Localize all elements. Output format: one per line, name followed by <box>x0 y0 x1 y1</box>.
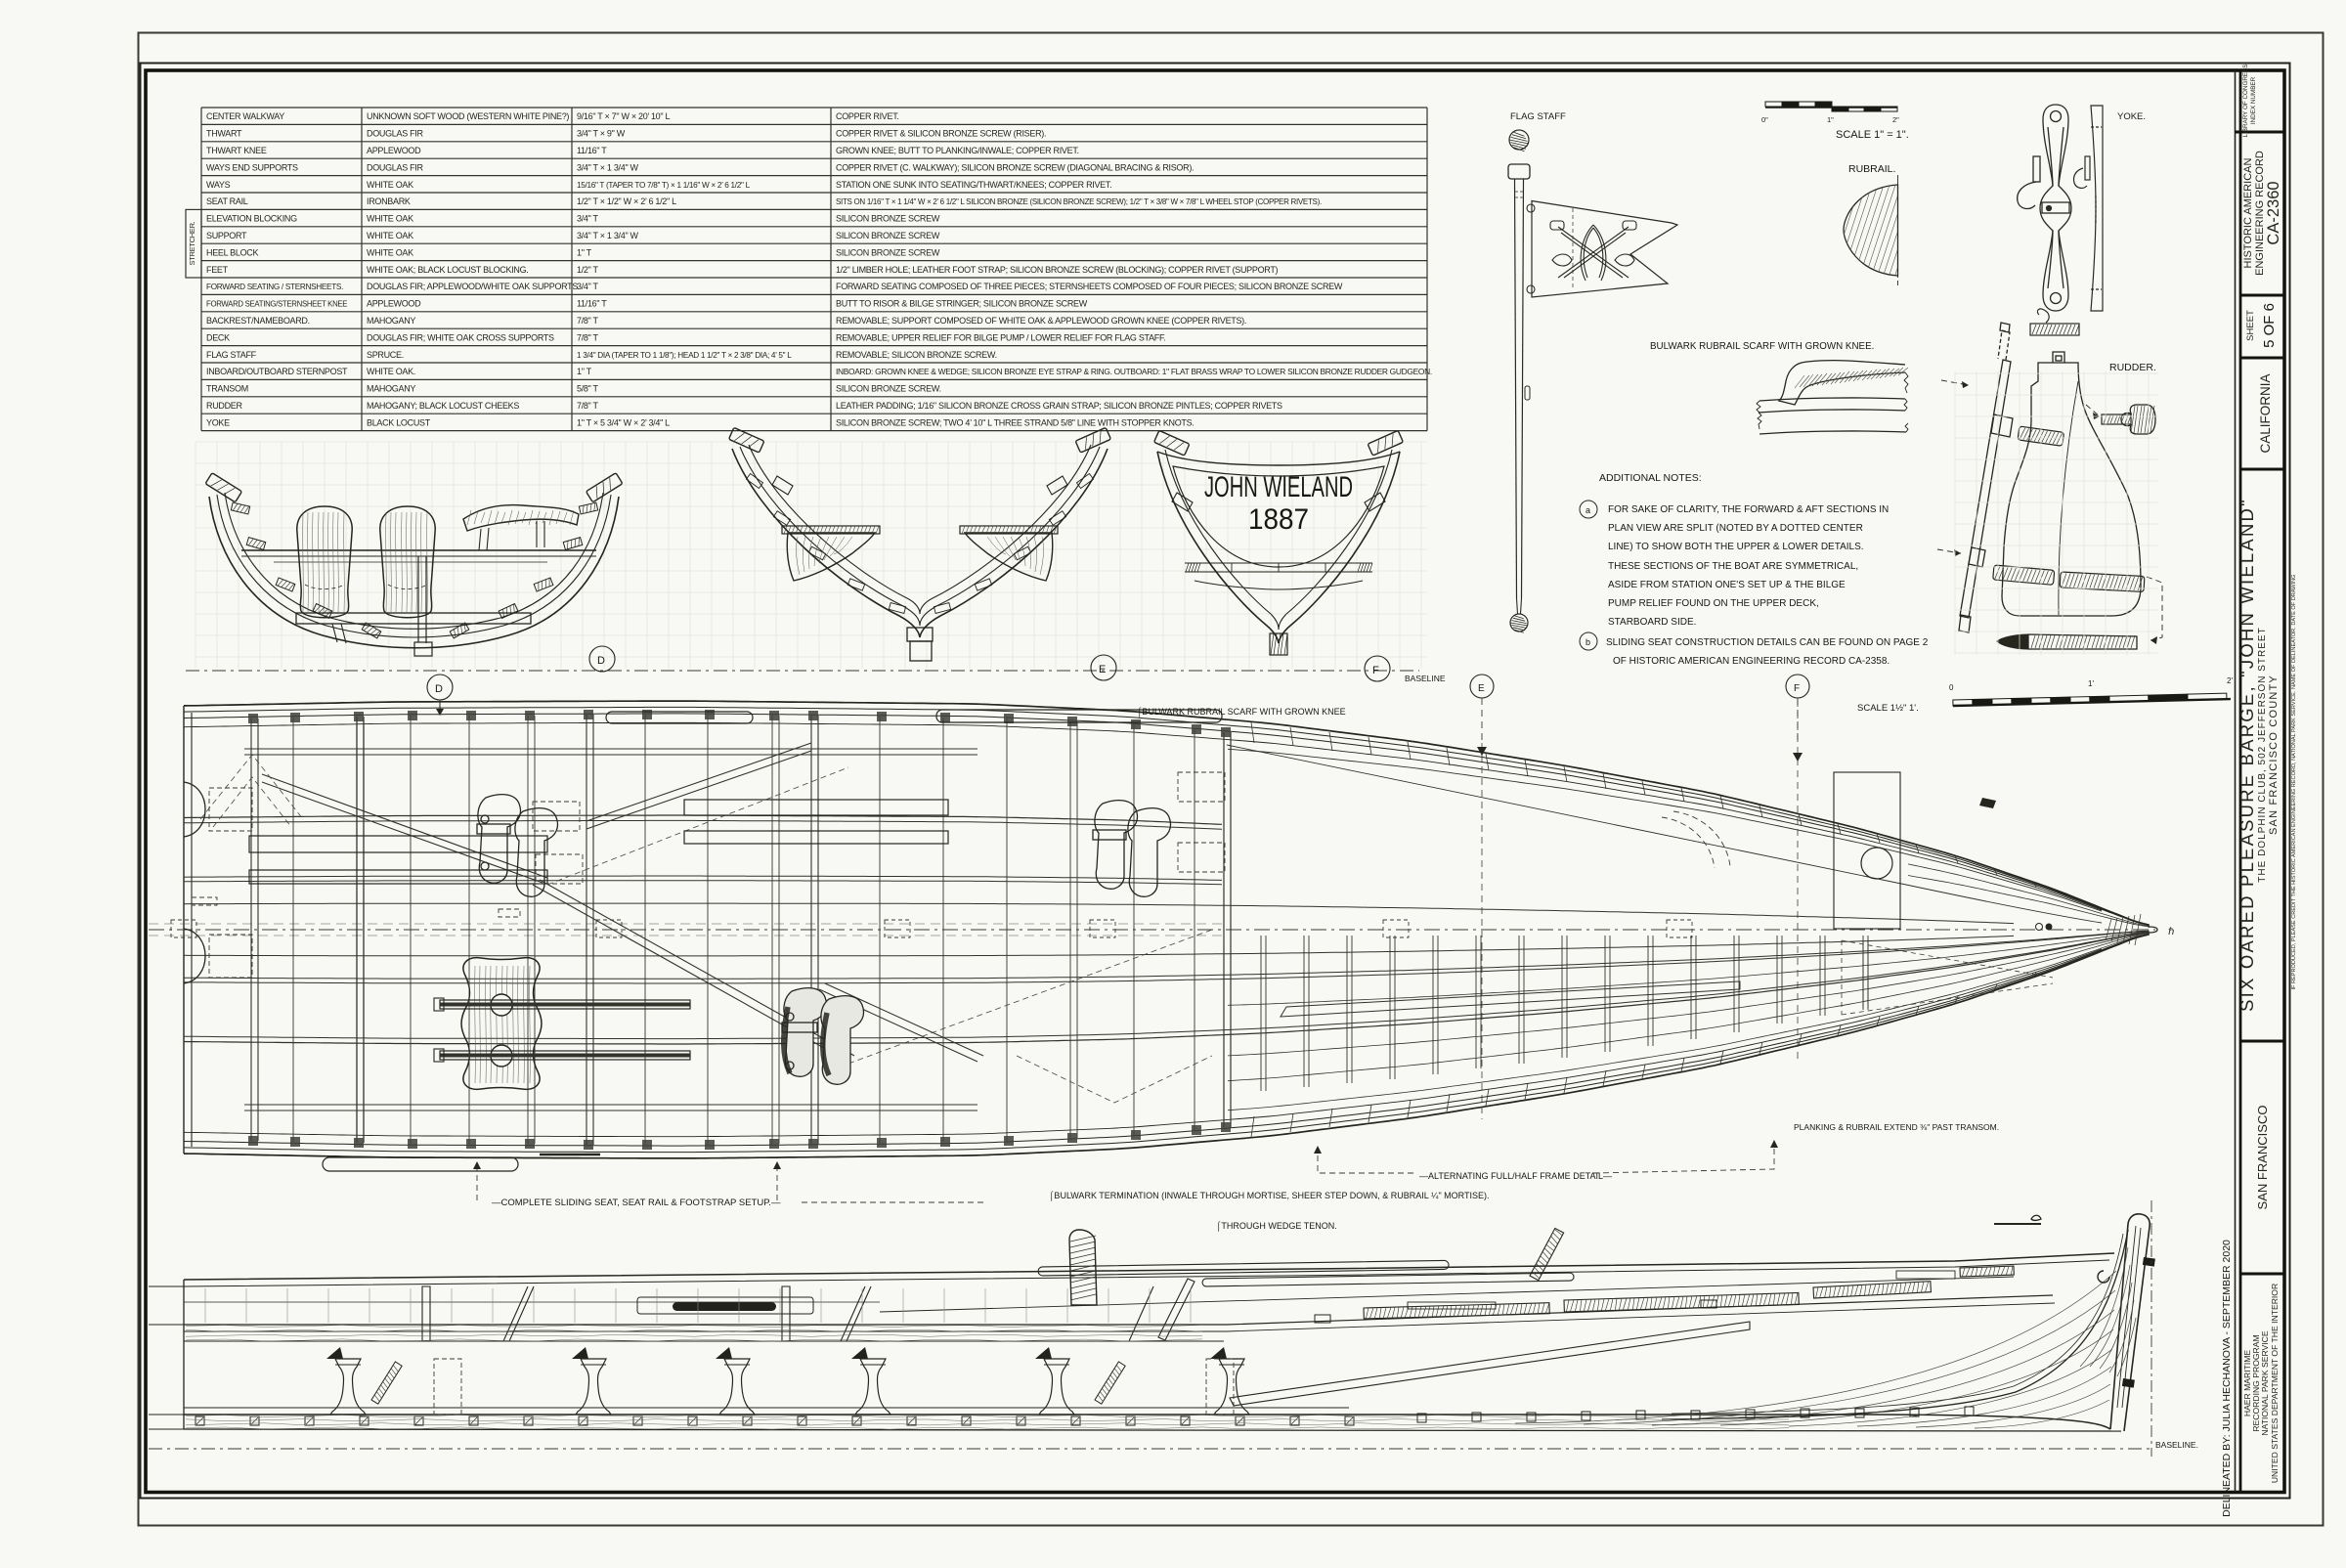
svg-text:1887: 1887 <box>1248 503 1309 536</box>
svg-text:SILICON BRONZE SCREW: SILICON BRONZE SCREW <box>836 231 940 240</box>
svg-text:THESE SECTIONS OF THE BOAT ARE: THESE SECTIONS OF THE BOAT ARE SYMMETRIC… <box>1608 561 1858 572</box>
svg-text:ASIDE FROM STATION ONE'S SET U: ASIDE FROM STATION ONE'S SET UP & THE BI… <box>1608 580 1846 590</box>
svg-text:ADDITIONAL NOTES:: ADDITIONAL NOTES: <box>1599 472 1702 484</box>
svg-text:INDEX NUMBER: INDEX NUMBER <box>2250 76 2257 124</box>
svg-text:OF HISTORIC AMERICAN ENGINEERI: OF HISTORIC AMERICAN ENGINEERING RECORD … <box>1613 656 1890 667</box>
svg-text:1/2" T × 1/2" W × 2’ 6 1/2" L: 1/2" T × 1/2" W × 2’ 6 1/2" L <box>577 196 676 206</box>
svg-text:SPRUCE.: SPRUCE. <box>367 350 404 360</box>
svg-text:SHEET: SHEET <box>2245 310 2256 341</box>
svg-text:—ALTERNATING FULL/HALF FRAME D: —ALTERNATING FULL/HALF FRAME DETAIL— <box>1419 1171 1612 1181</box>
svg-text:3/4" T × 1 3/4" W: 3/4" T × 1 3/4" W <box>577 231 639 240</box>
svg-text:INBOARD/OUTBOARD STERNPOST: INBOARD/OUTBOARD STERNPOST <box>206 367 348 376</box>
svg-text:7/8" T: 7/8" T <box>577 401 599 411</box>
svg-text:SLIDING SEAT CONSTRUCTION DETA: SLIDING SEAT CONSTRUCTION DETAILS CAN BE… <box>1606 637 1929 648</box>
svg-text:DOUGLAS FIR; APPLEWOOD/WHITE O: DOUGLAS FIR; APPLEWOOD/WHITE OAK SUPPORT… <box>367 282 578 291</box>
svg-text:FORWARD SEATING COMPOSED OF TH: FORWARD SEATING COMPOSED OF THREE PIECES… <box>836 282 1343 291</box>
svg-text:—COMPLETE SLIDING SEAT, SEAT R: —COMPLETE SLIDING SEAT, SEAT RAIL & FOOT… <box>492 1198 781 1208</box>
svg-text:FEET: FEET <box>206 265 229 275</box>
svg-text:2": 2" <box>1892 115 1899 124</box>
svg-text:5 OF 6: 5 OF 6 <box>2261 303 2278 348</box>
svg-text:YOKE.: YOKE. <box>2117 111 2146 122</box>
svg-text:SILICON BRONZE SCREW: SILICON BRONZE SCREW <box>836 214 940 224</box>
svg-text:SITS ON 1/16" T × 1 1/4" W × 2: SITS ON 1/16" T × 1 1/4" W × 2’ 6 1/2" L… <box>836 197 1322 206</box>
svg-text:STARBOARD SIDE.: STARBOARD SIDE. <box>1608 617 1696 628</box>
svg-text:E: E <box>1478 683 1485 694</box>
svg-text:b: b <box>1586 637 1590 647</box>
svg-text:SCALE 1" = 1".: SCALE 1" = 1". <box>1836 129 1909 141</box>
svg-text:RUDDER.: RUDDER. <box>2109 362 2156 373</box>
svg-text:SILICON BRONZE SCREW; TWO 4’ 1: SILICON BRONZE SCREW; TWO 4’ 10" L THREE… <box>836 417 1195 427</box>
svg-text:UNITED STATES DEPARTMENT OF TH: UNITED STATES DEPARTMENT OF THE INTERIOR <box>2270 1284 2280 1483</box>
svg-text:11/16" T: 11/16" T <box>577 299 607 309</box>
svg-text:APPLEWOOD: APPLEWOOD <box>367 299 421 309</box>
svg-text:WHITE OAK: WHITE OAK <box>367 247 413 257</box>
svg-text:FORWARD SEATING/STERNSHEET KNE: FORWARD SEATING/STERNSHEET KNEE <box>206 300 347 309</box>
svg-text:1" T: 1" T <box>577 247 592 257</box>
svg-text:HEEL BLOCK: HEEL BLOCK <box>206 247 258 257</box>
svg-text:3/4" T × 9" W: 3/4" T × 9" W <box>577 129 626 139</box>
svg-text:D: D <box>597 655 605 667</box>
svg-text:1 3/4" DIA (TAPER TO 1 1/8");: 1 3/4" DIA (TAPER TO 1 1/8"); HEAD 1 1/2… <box>577 351 792 360</box>
svg-text:TRANSOM: TRANSOM <box>206 384 248 394</box>
svg-text:SAN FRANCISCO COUNTY: SAN FRANCISCO COUNTY <box>2268 675 2280 835</box>
svg-text:LEATHER PADDING; 1/16" SILICON: LEATHER PADDING; 1/16" SILICON BRONZE CR… <box>836 401 1282 411</box>
svg-text:1': 1' <box>2088 679 2094 688</box>
svg-text:BUTT TO RISOR & BILGE STRINGER: BUTT TO RISOR & BILGE STRINGER; SILICON … <box>836 299 1088 309</box>
svg-text:BLACK LOCUST: BLACK LOCUST <box>367 417 431 427</box>
svg-text:JOHN WIELAND: JOHN WIELAND <box>1204 471 1353 503</box>
svg-text:WHITE OAK: WHITE OAK <box>367 231 413 240</box>
svg-text:THWART KNEE: THWART KNEE <box>206 146 267 155</box>
svg-text:UNKNOWN SOFT WOOD (WESTERN WHI: UNKNOWN SOFT WOOD (WESTERN WHITE PINE?) <box>367 111 569 121</box>
svg-text:STRETCHER.: STRETCHER. <box>188 221 196 265</box>
svg-text:PLAN VIEW ARE SPLIT (NOTED BY: PLAN VIEW ARE SPLIT (NOTED BY A DOTTED C… <box>1608 523 1863 534</box>
svg-text:COPPER RIVET (C. WALKWAY); SIL: COPPER RIVET (C. WALKWAY); SILICON BRONZ… <box>836 162 1194 172</box>
svg-text:7/8" T: 7/8" T <box>577 316 599 326</box>
svg-text:SEAT RAIL: SEAT RAIL <box>206 196 248 206</box>
svg-text:BULWARK RUBRAIL SCARF WITH GRO: BULWARK RUBRAIL SCARF WITH GROWN KNEE. <box>1650 341 1874 352</box>
svg-text:GROWN KNEE; BUTT TO PLANKING/I: GROWN KNEE; BUTT TO PLANKING/INWALE; COP… <box>836 146 1079 155</box>
svg-text:STATION ONE SUNK INTO SEATING/: STATION ONE SUNK INTO SEATING/THWART/KNE… <box>836 180 1111 190</box>
svg-text:WAYS: WAYS <box>206 180 231 190</box>
svg-text:SUPPORT: SUPPORT <box>206 231 247 240</box>
svg-text:RUBRAIL.: RUBRAIL. <box>1848 163 1895 175</box>
svg-text:CALIFORNIA: CALIFORNIA <box>2258 373 2273 453</box>
svg-text:a: a <box>1586 505 1590 515</box>
svg-text:DECK: DECK <box>206 332 230 342</box>
svg-text:DOUGLAS FIR; WHITE OAK CROSS S: DOUGLAS FIR; WHITE OAK CROSS SUPPORTS <box>367 332 554 342</box>
svg-text:D: D <box>435 683 443 695</box>
svg-text:CENTER WALKWAY: CENTER WALKWAY <box>206 111 284 121</box>
svg-text:7/8" T: 7/8" T <box>577 332 599 342</box>
svg-text:3/4" T: 3/4" T <box>577 214 599 224</box>
svg-text:ℏ: ℏ <box>2168 927 2174 937</box>
svg-text:3/4" T × 1 3/4" W: 3/4" T × 1 3/4" W <box>577 162 639 172</box>
svg-text:9/16" T × 7" W × 20’ 10" L: 9/16" T × 7" W × 20’ 10" L <box>577 111 670 121</box>
svg-text:WHITE OAK; BLACK LOCUST BLOCKI: WHITE OAK; BLACK LOCUST BLOCKING. <box>367 265 528 275</box>
svg-text:DOUGLAS FIR: DOUGLAS FIR <box>367 129 424 139</box>
svg-text:SIX OARED PLEASURE BARGE, "JOH: SIX OARED PLEASURE BARGE, "JOHN WIELAND" <box>2237 498 2257 1012</box>
svg-text:PUMP RELIEF FOUND ON THE UPPER: PUMP RELIEF FOUND ON THE UPPER DECK, <box>1608 598 1819 609</box>
svg-text:REMOVABLE; SILICON BRONZE SCRE: REMOVABLE; SILICON BRONZE SCREW. <box>836 350 997 360</box>
svg-text:BACKREST/NAMEBOARD.: BACKREST/NAMEBOARD. <box>206 316 310 326</box>
svg-text:DELINEATED BY: JULIA HECHANOVA: DELINEATED BY: JULIA HECHANOVA - SEPTEMB… <box>2221 1240 2233 1517</box>
svg-text:WHITE OAK: WHITE OAK <box>367 214 413 224</box>
svg-text:SCALE 1½" 1'.: SCALE 1½" 1'. <box>1857 703 1919 714</box>
svg-text:FORWARD SEATING / STERNSHEETS.: FORWARD SEATING / STERNSHEETS. <box>206 283 343 291</box>
svg-text:11/16" T: 11/16" T <box>577 146 607 155</box>
svg-text:FLAG STAFF: FLAG STAFF <box>206 350 257 360</box>
svg-text:WHITE OAK.: WHITE OAK. <box>367 367 415 376</box>
svg-text:1" T × 5 3/4" W × 2’ 3/4" L: 1" T × 5 3/4" W × 2’ 3/4" L <box>577 417 670 427</box>
svg-text:REMOVABLE; SUPPORT COMPOSED OF: REMOVABLE; SUPPORT COMPOSED OF WHITE OAK… <box>836 316 1246 326</box>
svg-text:YOKE: YOKE <box>206 417 230 427</box>
svg-text:NATIONAL PARK SERVICE: NATIONAL PARK SERVICE <box>2260 1330 2270 1435</box>
svg-text:DOUGLAS FIR: DOUGLAS FIR <box>367 162 424 172</box>
svg-text:ELEVATION BLOCKING: ELEVATION BLOCKING <box>206 214 297 224</box>
svg-text:RUDDER: RUDDER <box>206 401 243 411</box>
svg-text:⌠BULWARK TERMINATION (INWALE T: ⌠BULWARK TERMINATION (INWALE THROUGH MOR… <box>1049 1191 1490 1201</box>
svg-text:E: E <box>1099 664 1106 675</box>
svg-text:SILICON BRONZE SCREW.: SILICON BRONZE SCREW. <box>836 384 941 394</box>
svg-text:SAN FRANCISCO: SAN FRANCISCO <box>2255 1106 2270 1210</box>
svg-text:⌠THROUGH WEDGE TENON.: ⌠THROUGH WEDGE TENON. <box>1216 1221 1337 1232</box>
svg-text:INBOARD: GROWN KNEE & WEDGE; S: INBOARD: GROWN KNEE & WEDGE; SILICON BRO… <box>836 367 1432 376</box>
svg-text:1" T: 1" T <box>577 367 592 376</box>
svg-text:CA-2360: CA-2360 <box>2265 181 2282 244</box>
svg-text:COPPER RIVET.: COPPER RIVET. <box>836 111 899 121</box>
svg-text:0: 0 <box>1949 683 1954 692</box>
svg-text:1/2" T: 1/2" T <box>577 265 599 275</box>
svg-text:THE DOLPHIN CLUB, 502 JEFFERSO: THE DOLPHIN CLUB, 502 JEFFERSON STREET <box>2257 627 2268 882</box>
svg-text:FOR SAKE OF CLARITY, THE FORWA: FOR SAKE OF CLARITY, THE FORWARD & AFT S… <box>1608 504 1889 515</box>
svg-text:COPPER RIVET & SILICON BRONZE: COPPER RIVET & SILICON BRONZE SCREW (RIS… <box>836 129 1046 139</box>
svg-text:1": 1" <box>1827 115 1834 124</box>
svg-text:LINE) TO SHOW BOTH THE UPPER &: LINE) TO SHOW BOTH THE UPPER & LOWER DET… <box>1608 542 1864 552</box>
svg-text:FLAG STAFF: FLAG STAFF <box>1510 111 1566 122</box>
svg-text:MAHOGANY: MAHOGANY <box>367 316 415 326</box>
svg-text:3/4" T: 3/4" T <box>577 282 599 291</box>
svg-text:2': 2' <box>2227 676 2233 685</box>
svg-text:BASELINE.: BASELINE. <box>2155 1440 2198 1450</box>
svg-text:APPLEWOOD: APPLEWOOD <box>367 146 421 155</box>
svg-text:WHITE OAK: WHITE OAK <box>367 180 413 190</box>
svg-text:PLANKING & RUBRAIL EXTEND ⅜" P: PLANKING & RUBRAIL EXTEND ⅜" PAST TRANSO… <box>1794 1122 1999 1132</box>
svg-text:F: F <box>1372 665 1379 676</box>
svg-text:REMOVABLE; UPPER RELIEF FOR BI: REMOVABLE; UPPER RELIEF FOR BILGE PUMP /… <box>836 332 1165 342</box>
svg-text:WAYS END SUPPORTS: WAYS END SUPPORTS <box>206 162 298 172</box>
svg-text:HISTORIC AMERICAN: HISTORIC AMERICAN <box>2242 158 2254 269</box>
svg-text:15/16" T (TAPER TO 7/8" T) × 1: 15/16" T (TAPER TO 7/8" T) × 1 1/16" W ×… <box>577 181 751 190</box>
svg-text:MAHOGANY; BLACK LOCUST CHEEKS: MAHOGANY; BLACK LOCUST CHEEKS <box>367 401 519 411</box>
svg-text:SILICON BRONZE SCREW: SILICON BRONZE SCREW <box>836 247 940 257</box>
svg-text:IF REPRODUCED, PLEASE CREDIT T: IF REPRODUCED, PLEASE CREDIT THE HISTORI… <box>2291 574 2297 989</box>
svg-text:⌠BULWARK RUBRAIL SCARF WITH GR: ⌠BULWARK RUBRAIL SCARF WITH GROWN KNEE <box>1137 707 1346 718</box>
svg-text:1/2" LIMBER HOLE; LEATHER FOOT: 1/2" LIMBER HOLE; LEATHER FOOT STRAP; SI… <box>836 265 1279 275</box>
svg-text:MAHOGANY: MAHOGANY <box>367 384 415 394</box>
svg-text:LIBRARY OF CONGRESS: LIBRARY OF CONGRESS <box>2242 65 2249 138</box>
svg-text:THWART: THWART <box>206 129 242 139</box>
svg-text:IRONBARK: IRONBARK <box>367 196 411 206</box>
svg-text:F: F <box>1794 683 1800 694</box>
svg-text:0": 0" <box>1761 115 1768 124</box>
svg-text:5/8" T: 5/8" T <box>577 384 599 394</box>
svg-text:BASELINE: BASELINE <box>1405 674 1446 683</box>
